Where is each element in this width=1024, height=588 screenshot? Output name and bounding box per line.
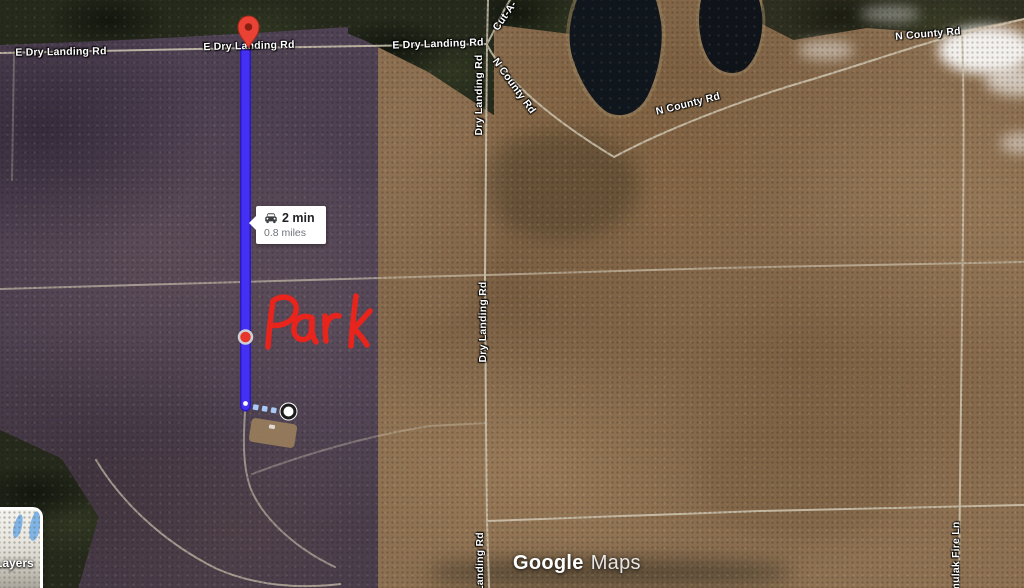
route-info-bubble[interactable]: 2 min 0.8 miles: [256, 206, 326, 244]
bubble-arrow: [249, 216, 256, 230]
car-icon: [264, 212, 278, 224]
layers-button[interactable]: Layers: [0, 507, 43, 588]
pin-shadow: [245, 46, 257, 50]
layers-label: Layers: [0, 556, 34, 570]
pin-layer: [0, 0, 1024, 588]
layers-thumbnail: Layers: [0, 510, 40, 588]
google-maps-watermark[interactable]: GoogleMaps: [513, 552, 641, 575]
pin-inner-dot: [245, 23, 253, 31]
water-swirl: [28, 510, 40, 541]
google-logo-text: Google: [513, 552, 584, 574]
red-map-pin[interactable]: [238, 16, 259, 48]
map-canvas[interactable]: E Dry Landing Rd E Dry Landing Rd E Dry …: [0, 0, 1024, 588]
maps-logo-text: Maps: [591, 552, 641, 574]
water-swirl: [11, 513, 25, 538]
route-distance: 0.8 miles: [264, 227, 322, 239]
route-duration: 2 min: [282, 211, 315, 225]
